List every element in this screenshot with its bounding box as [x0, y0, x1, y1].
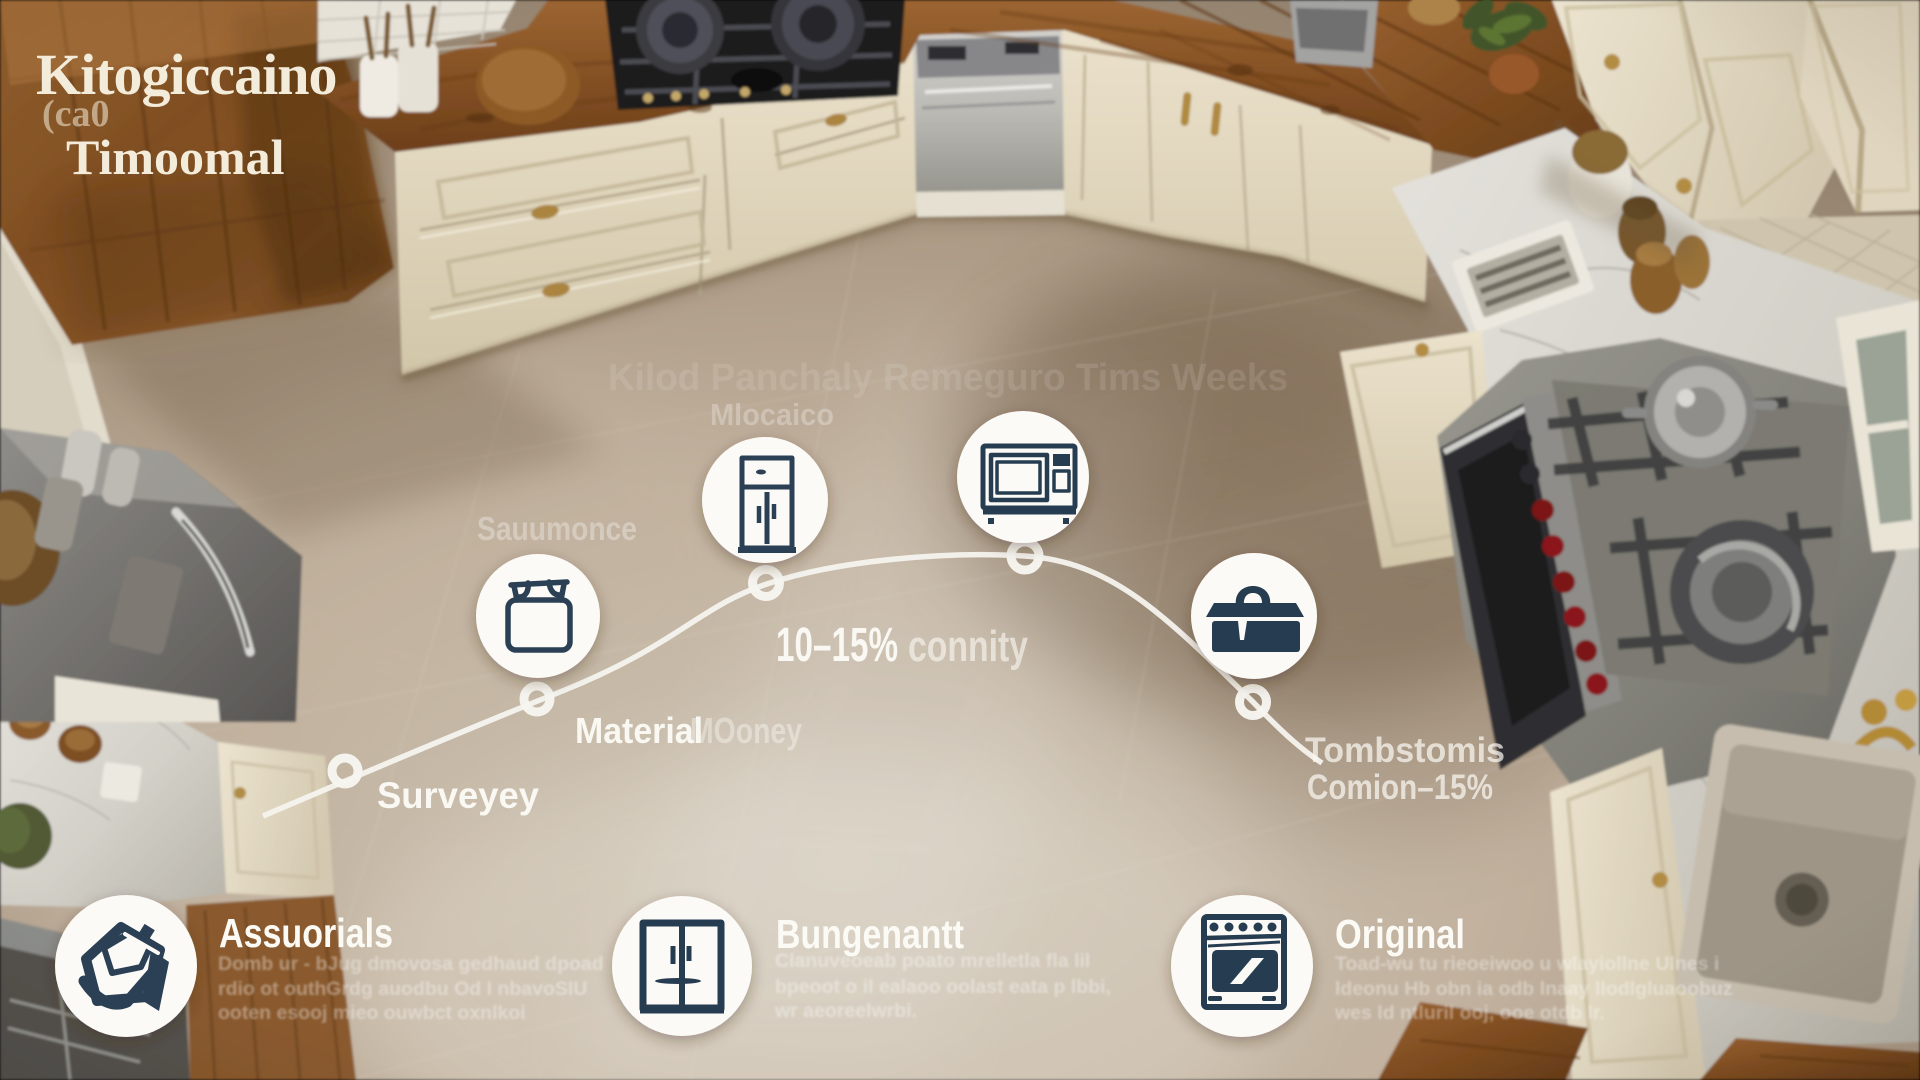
svg-text:Tombstomis: Tombstomis	[1305, 731, 1505, 770]
svg-text:ooten esooj mieo ouwbct oxnlk: ooten esooj mieo ouwbct oxnlkoi	[218, 1002, 526, 1024]
svg-text:10–15%: 10–15%	[776, 619, 898, 672]
svg-text:Material: Material	[575, 710, 703, 751]
svg-text:ldeonu Hb obn ia odb lnaay llo: ldeonu Hb obn ia odb lnaay llodlgluaoobu…	[1335, 978, 1733, 1000]
svg-text:Timoomal: Timoomal	[66, 129, 285, 185]
svg-text:Original: Original	[1335, 911, 1465, 957]
svg-text:connity: connity	[908, 622, 1028, 671]
svg-text:Assuorials: Assuorials	[219, 910, 393, 956]
svg-text:MOoney: MOoney	[690, 710, 802, 751]
svg-text:Kilod Panchaly Remeguro Tims W: Kilod Panchaly Remeguro Tims Weeks	[608, 357, 1288, 399]
svg-text:bpeoot o il ealaoo oolast eata: bpeoot o il ealaoo oolast eata p lbbi,	[775, 976, 1111, 998]
svg-text:wr aeoreelwrbi.: wr aeoreelwrbi.	[774, 1000, 917, 1022]
svg-text:rdio ot outhGrdg auodbu Od I n: rdio ot outhGrdg auodbu Od I nbavoSIU	[218, 978, 587, 1000]
svg-text:Domb ur - bJug dmovosa gedhaud: Domb ur - bJug dmovosa gedhaud dpoad	[218, 953, 604, 975]
svg-text:Comion–15%: Comion–15%	[1307, 768, 1493, 807]
svg-text:Sauumonce: Sauumonce	[477, 510, 637, 547]
svg-text:wes ld ntluril ooj, ooe otdb l: wes ld ntluril ooj, ooe otdb lr.	[1334, 1002, 1605, 1024]
svg-text:Toad-wu tu rieoeiwoo u wlayiol: Toad-wu tu rieoeiwoo u wlayiollne Ulnes …	[1335, 953, 1719, 975]
svg-text:Clanuveoeab poato mrelletla fl: Clanuveoeab poato mrelletla fla lil	[775, 950, 1090, 972]
svg-text:Surveyey: Surveyey	[377, 775, 539, 816]
svg-text:Mlocaico: Mlocaico	[710, 397, 834, 432]
